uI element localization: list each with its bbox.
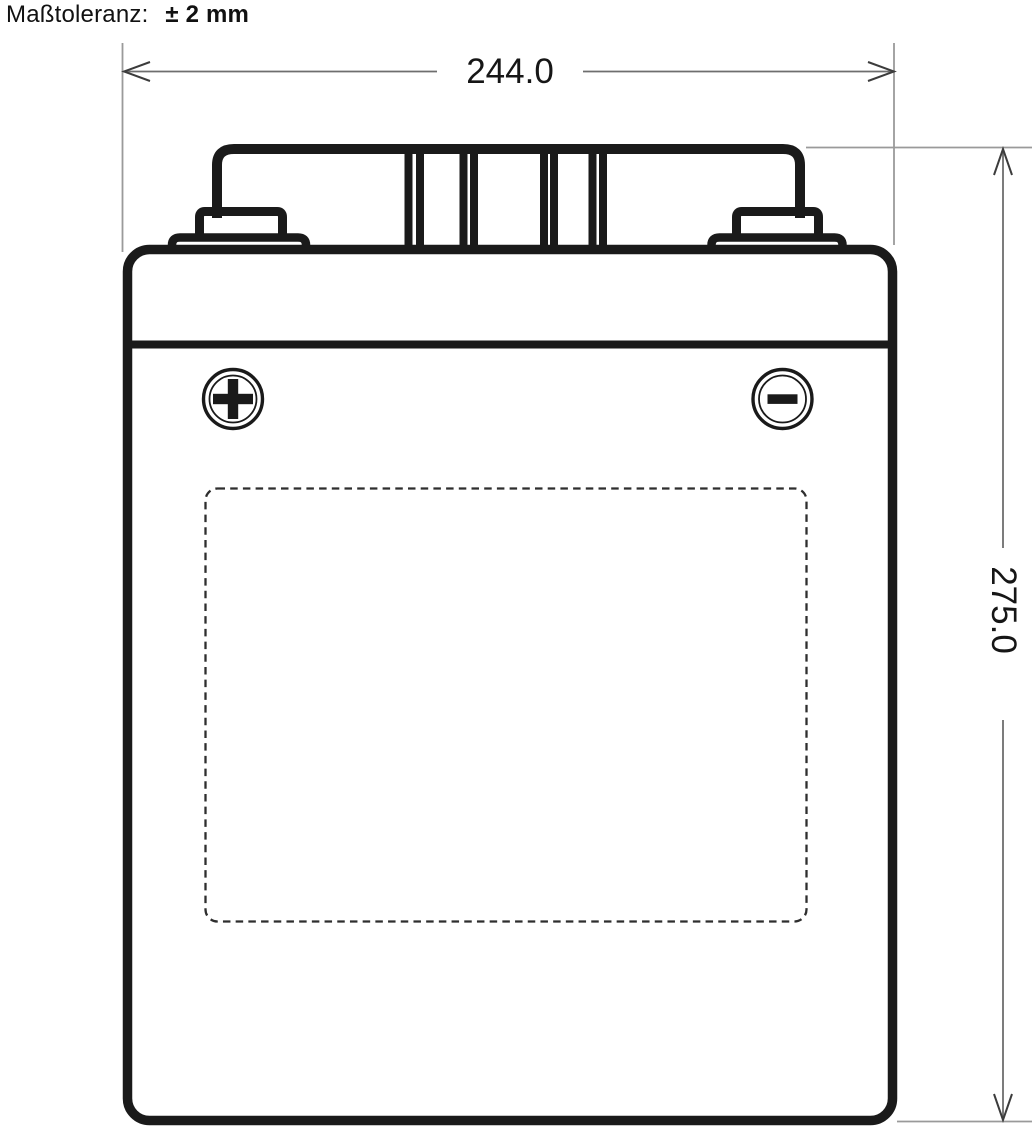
height-dimension-value: 275.0 [984,566,1023,654]
width-dimension-value: 244.0 [466,52,554,91]
battery-dimension-drawing: 244.0 275.0 [0,0,1034,1129]
battery-outline-group [124,149,896,1121]
battery-case [128,250,893,1121]
minus-icon [768,394,798,404]
top-lid [217,149,800,218]
technical-drawing-canvas: Maßtoleranz: ± 2 mm 244.0 275.0 [0,0,1034,1129]
lid-slot-lines [409,153,604,248]
